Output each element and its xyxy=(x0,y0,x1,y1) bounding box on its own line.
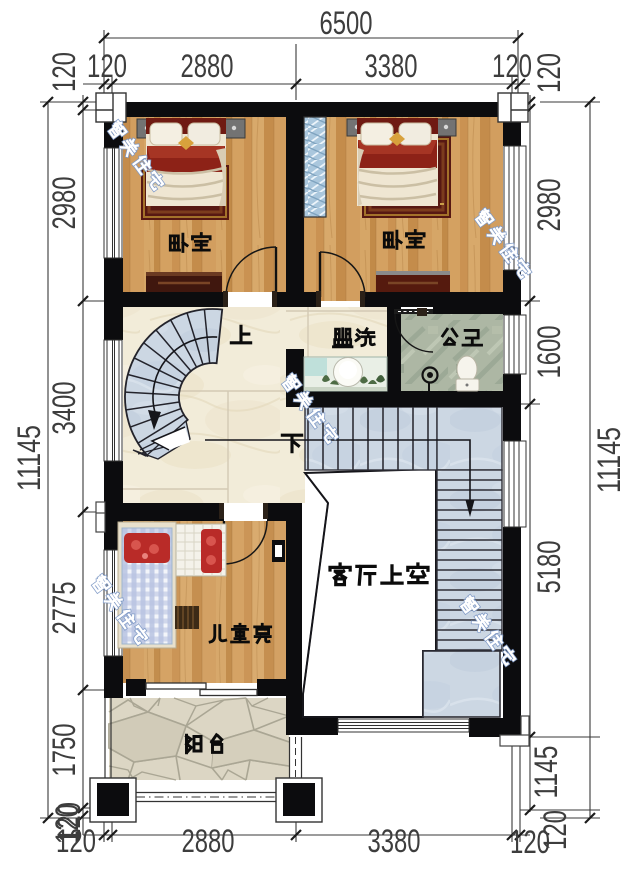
svg-text:120: 120 xyxy=(537,810,573,850)
svg-text:11145: 11145 xyxy=(11,425,47,491)
svg-text:5180: 5180 xyxy=(531,541,567,594)
svg-text:2980: 2980 xyxy=(46,177,82,230)
svg-text:1145: 1145 xyxy=(528,746,564,799)
svg-text:120: 120 xyxy=(46,52,82,92)
svg-text:3380: 3380 xyxy=(368,823,421,859)
svg-text:3400: 3400 xyxy=(46,382,82,435)
svg-text:2880: 2880 xyxy=(181,48,234,84)
svg-text:120: 120 xyxy=(87,48,127,84)
svg-text:1600: 1600 xyxy=(531,326,567,379)
svg-text:1750: 1750 xyxy=(46,724,82,777)
svg-text:11145: 11145 xyxy=(591,427,627,493)
svg-text:2775: 2775 xyxy=(46,582,82,635)
svg-text:2880: 2880 xyxy=(182,823,235,859)
svg-text:6500: 6500 xyxy=(320,5,373,41)
svg-text:3380: 3380 xyxy=(365,48,418,84)
svg-text:2980: 2980 xyxy=(531,179,567,232)
svg-text:120: 120 xyxy=(531,53,567,93)
svg-text:120: 120 xyxy=(51,802,87,842)
svg-text:120: 120 xyxy=(492,48,532,84)
